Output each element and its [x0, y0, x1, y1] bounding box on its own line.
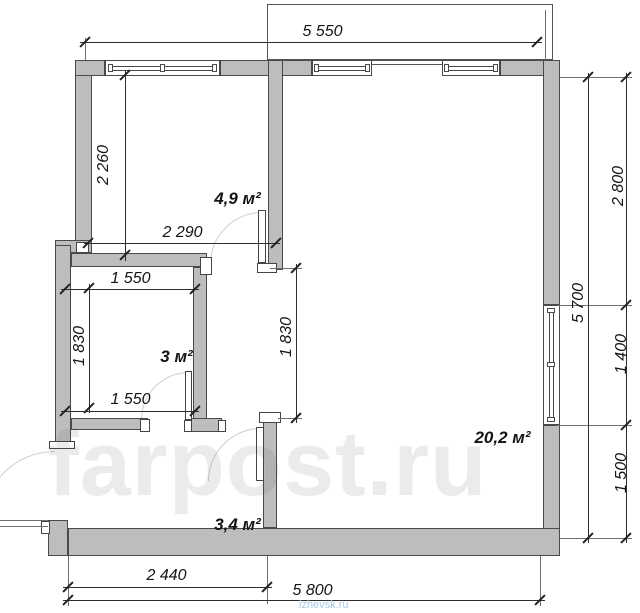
balcony-door-sill [372, 60, 442, 65]
dim-line-bottom-total [63, 600, 545, 601]
window-kitchen [105, 60, 220, 76]
wall-top-b [220, 60, 312, 76]
wall-storage-bottom [71, 418, 148, 430]
door-arc-entrance [0, 451, 55, 524]
dim-line-kitchen-height [125, 71, 126, 261]
extension-line [560, 77, 632, 78]
dim-line-storage-bottom [61, 411, 199, 412]
window-living-side [543, 305, 560, 425]
dim-label-bottom-left: 2 440 [124, 567, 209, 585]
room-label-storage: 3 м² [134, 347, 219, 367]
dim-label-storage-bottom: 1 550 [88, 391, 173, 409]
door-jamb [200, 257, 212, 275]
entrance-door-line [0, 526, 48, 527]
extension-line [545, 10, 546, 60]
dim-label-right-total: 5 700 [570, 268, 588, 338]
window-living-right [442, 60, 500, 76]
extension-line [557, 305, 632, 306]
room-label-hallway: 3,4 м² [195, 515, 280, 535]
dim-label-right-window: 1 400 [613, 319, 631, 389]
dim-line-bottom-left [63, 587, 272, 588]
extension-line [557, 425, 632, 426]
wall-left-upper [75, 60, 92, 253]
window-living-left [312, 60, 372, 76]
door-jamb [218, 420, 226, 432]
entrance-door-line [0, 520, 48, 521]
wall-storage-corner [188, 418, 222, 432]
dim-label-right-upper: 2 800 [610, 151, 628, 221]
dim-line-kitchen-width [84, 243, 280, 244]
wall-hallway-living-stub [263, 417, 277, 528]
dim-label-top-width: 5 550 [280, 23, 365, 41]
dim-line-storage-top [61, 289, 199, 290]
extension-line [560, 538, 632, 539]
wall-end-cap [49, 441, 75, 449]
wall-top-a [75, 60, 105, 76]
dim-label-living-opening: 1 830 [278, 302, 296, 372]
dim-line-top-width [80, 42, 542, 43]
dim-label-storage-top: 1 550 [88, 270, 173, 288]
dim-label-kitchen-width: 2 290 [140, 224, 225, 242]
dim-label-storage-height: 1 830 [71, 311, 89, 381]
room-label-kitchen: 4,9 м² [195, 189, 280, 209]
extension-line [278, 418, 302, 419]
dim-label-bottom-total: 5 800 [270, 582, 355, 600]
dim-line-right-total [588, 73, 589, 543]
wall-storage-top [71, 253, 207, 267]
dim-line-living-opening [296, 264, 297, 423]
door-jamb [41, 521, 50, 534]
door-arc-living [208, 428, 261, 481]
extension-line [267, 556, 268, 604]
dim-label-right-lower: 1 500 [613, 438, 631, 508]
door-jamb [184, 420, 192, 432]
door-leaf-kitchen [258, 210, 266, 263]
door-jamb [140, 419, 150, 432]
dim-label-kitchen-height: 2 260 [95, 130, 113, 200]
door-leaf-living [256, 427, 264, 481]
wall-entrance-jamb [48, 520, 68, 556]
wall-right-upper [543, 60, 560, 305]
wall-bottom [68, 528, 560, 556]
floor-plan: 5 550 2 290 1 550 1 550 2 440 5 800 2 26… [0, 0, 640, 613]
room-label-living: 20,2 м² [450, 428, 555, 448]
